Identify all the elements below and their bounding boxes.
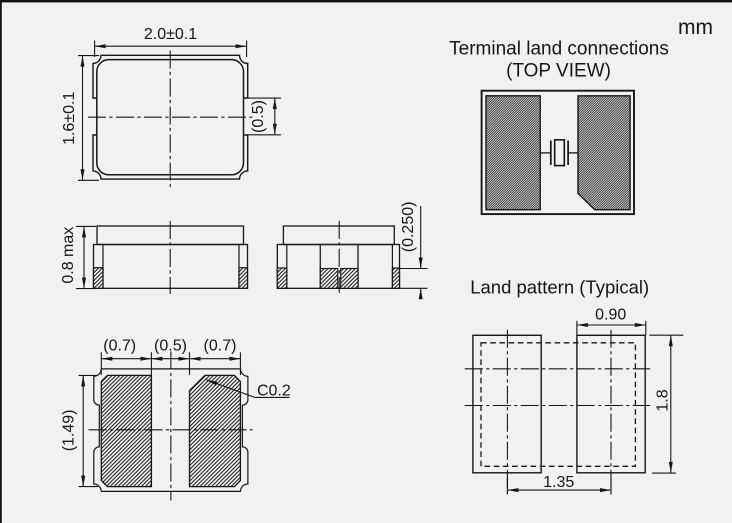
- svg-text:(1.49): (1.49): [60, 410, 77, 452]
- svg-text:(0.5): (0.5): [154, 337, 187, 354]
- svg-text:1.6±0.1: 1.6±0.1: [61, 92, 78, 145]
- svg-text:0.90: 0.90: [595, 307, 626, 324]
- svg-text:0.8 max: 0.8 max: [60, 227, 77, 284]
- svg-text:(TOP VIEW): (TOP VIEW): [506, 61, 611, 82]
- svg-text:1.8: 1.8: [654, 389, 671, 411]
- svg-text:mm: mm: [678, 16, 713, 39]
- svg-text:Terminal land connections: Terminal land connections: [449, 39, 669, 60]
- svg-text:C0.2: C0.2: [257, 382, 291, 399]
- svg-text:2.0±0.1: 2.0±0.1: [144, 26, 197, 43]
- svg-text:(0.7): (0.7): [103, 337, 136, 354]
- svg-text:1.35: 1.35: [543, 474, 574, 491]
- svg-text:Land pattern (Typical): Land pattern (Typical): [470, 277, 649, 298]
- svg-text:(0.5): (0.5): [250, 100, 267, 133]
- svg-text:(0.7): (0.7): [204, 337, 237, 354]
- svg-text:(0.250): (0.250): [400, 202, 417, 253]
